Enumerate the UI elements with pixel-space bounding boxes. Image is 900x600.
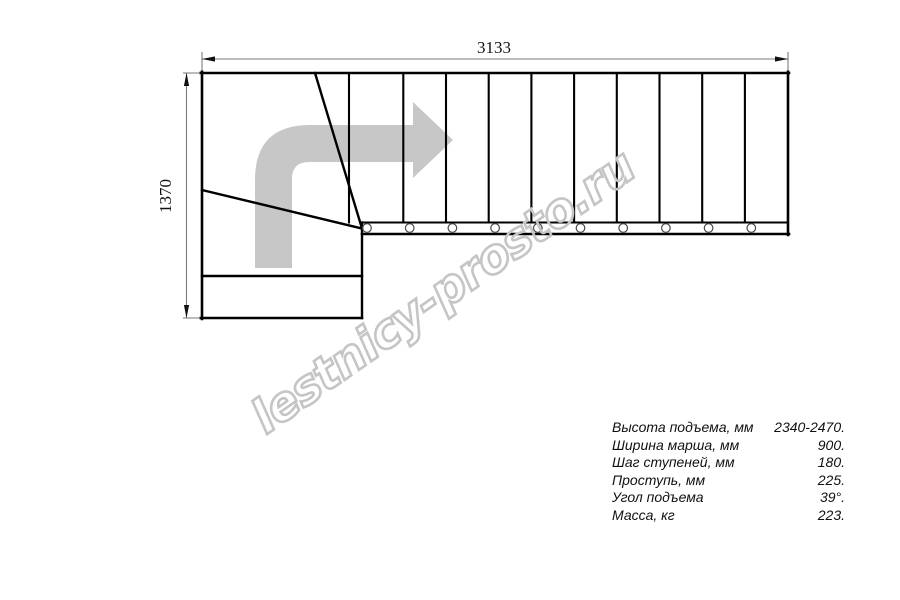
specs-table: Высота подъема, мм 2340-2470. Ширина мар… xyxy=(612,419,845,524)
baluster-circle xyxy=(704,224,713,233)
spec-row: Проступь, мм 225. xyxy=(612,472,845,490)
spec-label: Проступь, мм xyxy=(612,472,705,490)
spec-label: Масса, кг xyxy=(612,507,675,525)
spec-value: 180. xyxy=(818,454,845,472)
spec-value: 225. xyxy=(818,472,845,490)
spec-value: 39°. xyxy=(820,489,845,507)
spec-value: 900. xyxy=(818,437,845,455)
width-dimension-label: 3133 xyxy=(477,38,511,57)
baluster-circle xyxy=(363,224,372,233)
spec-label: Высота подъема, мм xyxy=(612,419,754,437)
arrowhead-right xyxy=(775,56,788,61)
spec-row: Шаг ступеней, мм 180. xyxy=(612,454,845,472)
spec-value: 2340-2470. xyxy=(774,419,845,437)
direction-arrow xyxy=(255,102,453,268)
baluster-circle xyxy=(448,224,457,233)
depth-dimension-label: 1370 xyxy=(156,179,175,213)
arrowhead-bottom xyxy=(184,305,189,318)
spec-row: Угол подъема 39°. xyxy=(612,489,845,507)
spec-value: 223. xyxy=(818,507,845,525)
baluster-circle xyxy=(619,224,628,233)
spec-row: Масса, кг 223. xyxy=(612,507,845,525)
arrowhead-left xyxy=(202,56,215,61)
stair-plan-canvas: 3133 1370 lestnicy-prosto.ru Высота подъ… xyxy=(0,0,900,600)
spec-row: Ширина марша, мм 900. xyxy=(612,437,845,455)
spec-label: Ширина марша, мм xyxy=(612,437,739,455)
spec-label: Угол подъема xyxy=(612,489,704,507)
baluster-circle xyxy=(405,224,414,233)
baluster-circle xyxy=(747,224,756,233)
arrowhead-top xyxy=(184,73,189,86)
baluster-circle xyxy=(662,224,671,233)
spec-row: Высота подъема, мм 2340-2470. xyxy=(612,419,845,437)
spec-label: Шаг ступеней, мм xyxy=(612,454,735,472)
watermark: lestnicy-prosto.ru xyxy=(241,139,645,445)
